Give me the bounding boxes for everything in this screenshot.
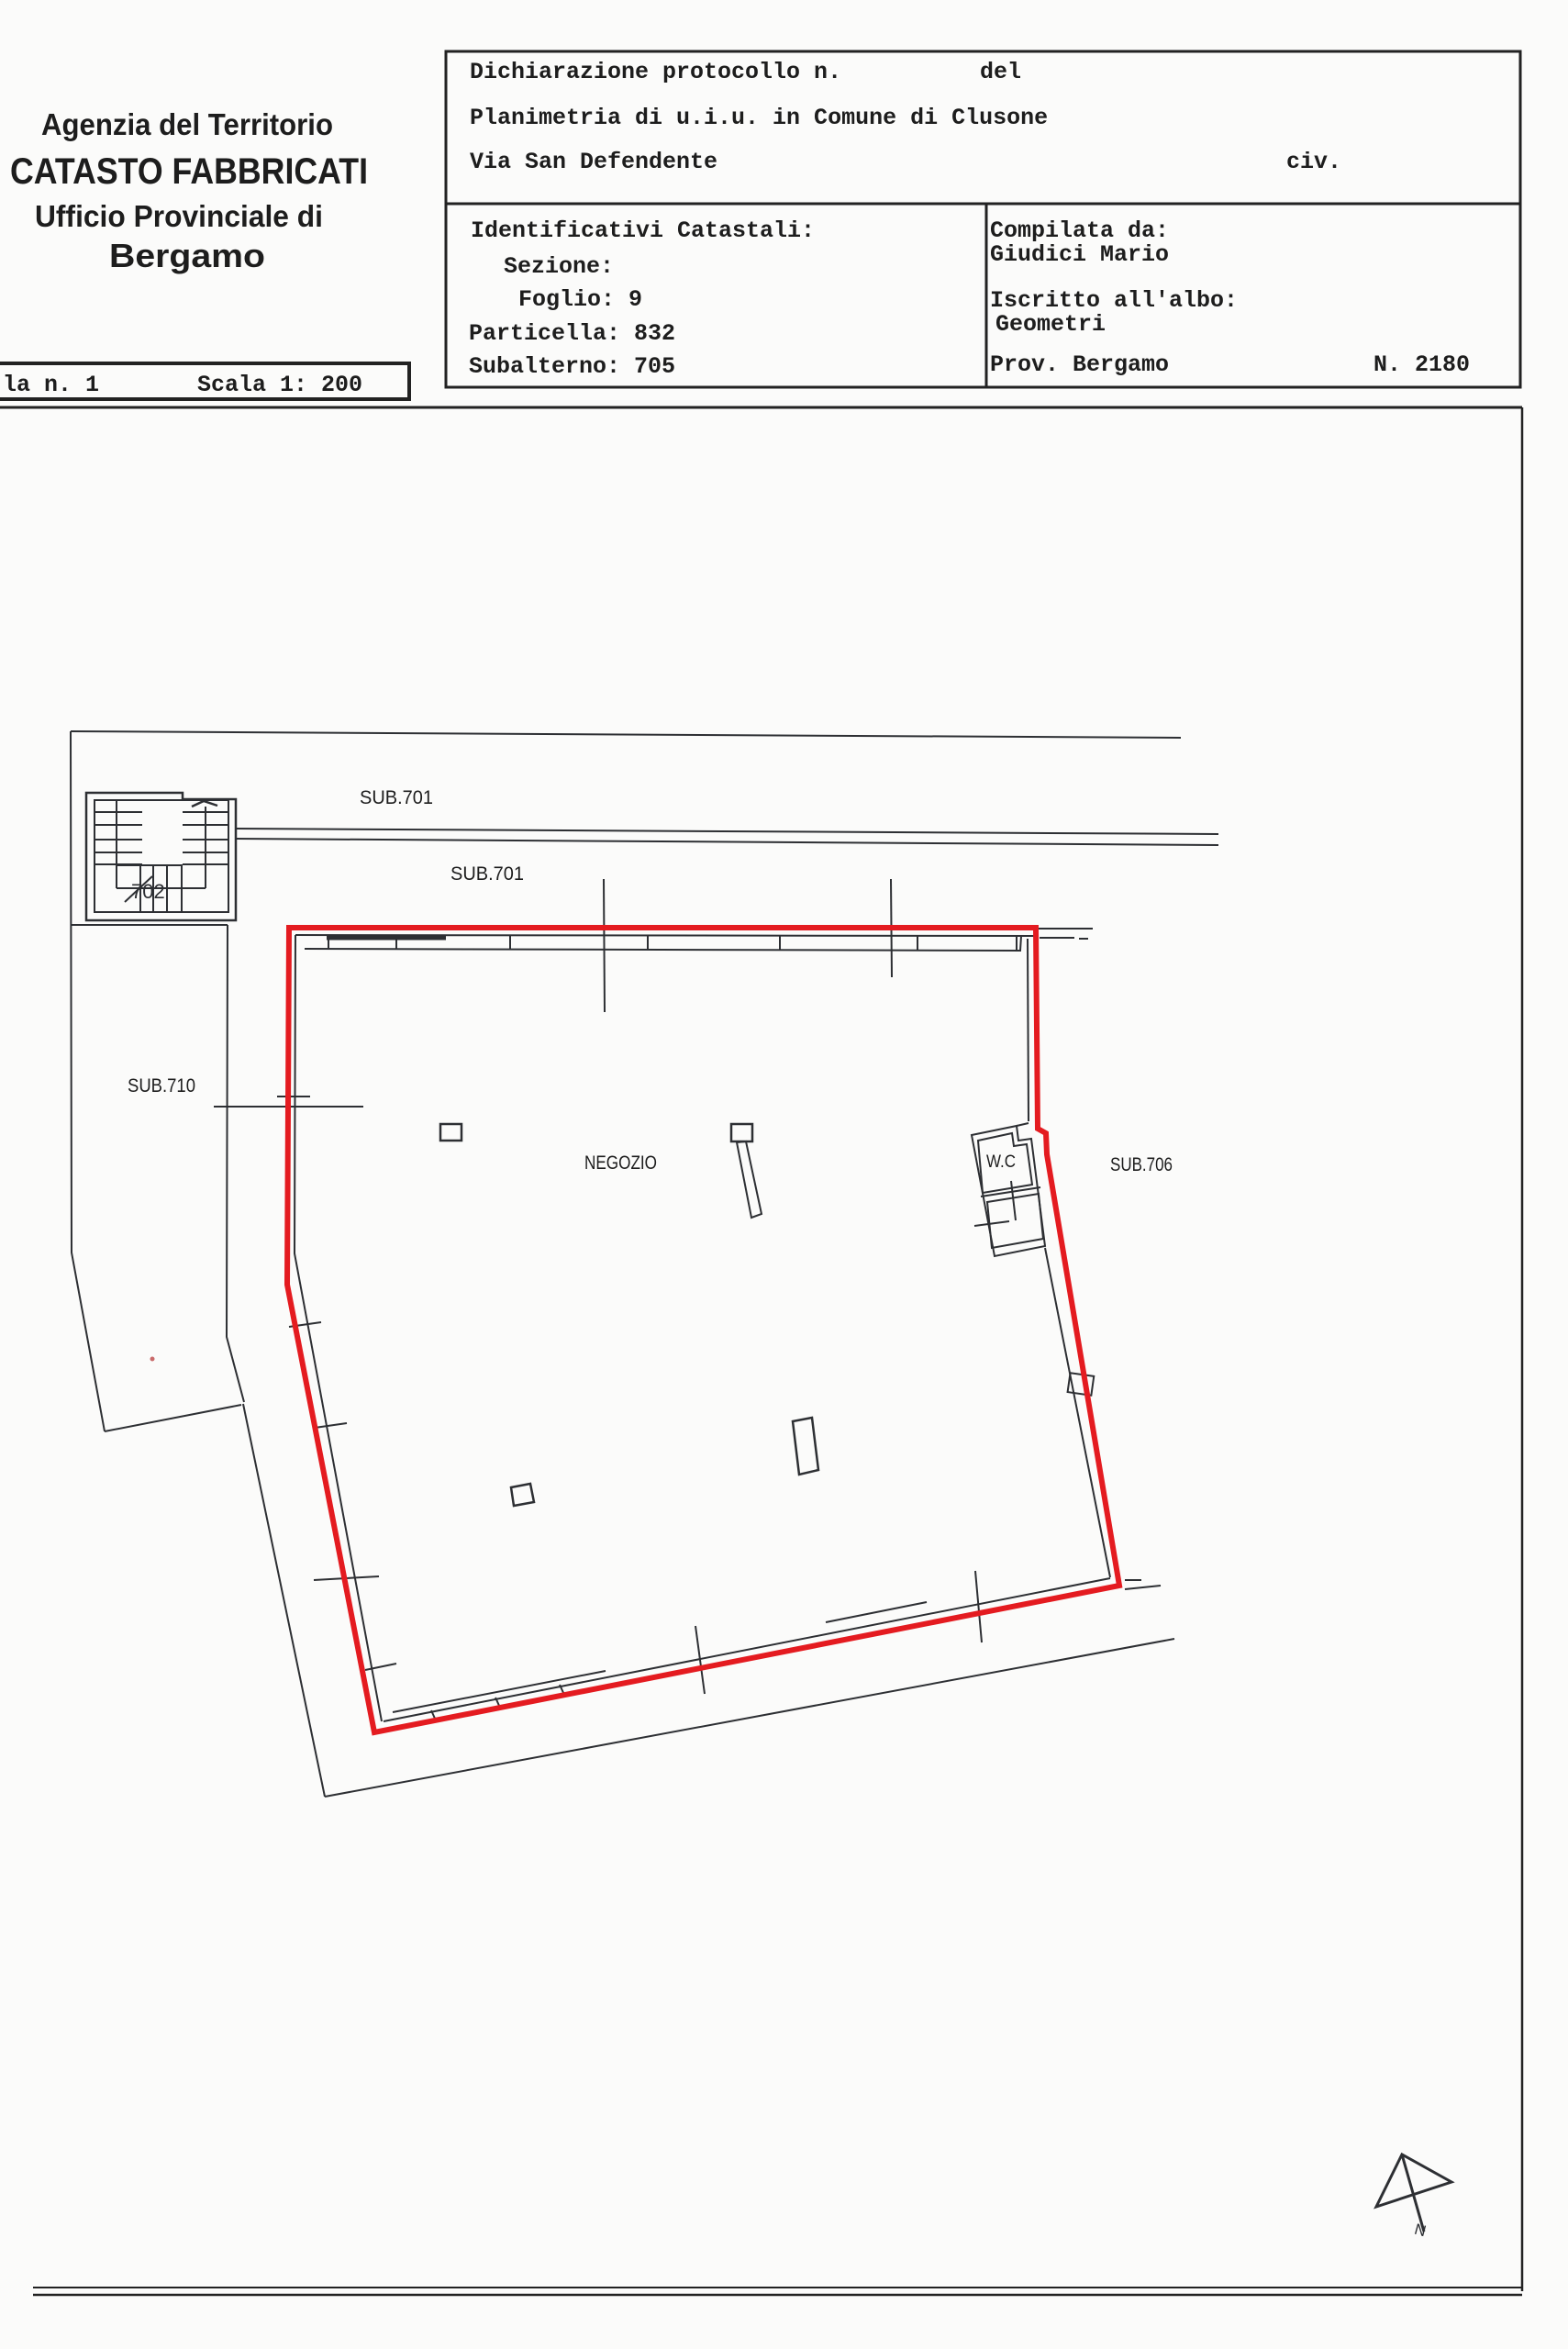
svg-text:Foglio: 9: Foglio: 9 [518,286,642,313]
svg-text:Agenzia del Territorio: Agenzia del Territorio [41,107,333,141]
svg-text:Identificativi Catastali:: Identificativi Catastali: [471,217,815,244]
svg-text:CATASTO FABBRICATI: CATASTO FABBRICATI [10,151,368,192]
svg-text:W.C: W.C [986,1152,1016,1172]
svg-text:la n. 1: la n. 1 [3,372,99,398]
svg-text:Iscritto all'albo:: Iscritto all'albo: [990,287,1238,314]
svg-text:Via San Defendente: Via San Defendente [470,149,717,175]
svg-text:civ.: civ. [1286,149,1341,175]
svg-text:Geometri: Geometri [995,311,1106,338]
svg-text:SUB.706: SUB.706 [1110,1154,1173,1175]
svg-text:Subalterno: 705: Subalterno: 705 [469,353,675,380]
svg-text:N. 2180: N. 2180 [1373,351,1470,378]
svg-text:Sezione:: Sezione: [504,253,614,280]
svg-text:Compilata da:: Compilata da: [990,217,1169,244]
svg-text:SUB.710: SUB.710 [128,1075,195,1097]
svg-text:SUB.701: SUB.701 [360,787,433,808]
svg-text:Particella: 832: Particella: 832 [469,320,675,347]
svg-text:Dichiarazione protocollo n.: Dichiarazione protocollo n. [470,59,841,85]
svg-text:del: del [980,59,1021,85]
svg-text:Prov. Bergamo: Prov. Bergamo [990,351,1169,378]
svg-text:Scala 1: 200: Scala 1: 200 [197,372,362,398]
svg-text:Planimetria di u.i.u. in Comun: Planimetria di u.i.u. in Comune di Cluso… [470,105,1048,131]
svg-text:NEGOZIO: NEGOZIO [584,1152,657,1174]
svg-text:Bergamo: Bergamo [109,237,265,274]
svg-text:SUB.701: SUB.701 [450,863,524,885]
svg-text:Ufficio Provinciale di: Ufficio Provinciale di [35,199,323,233]
svg-text:Giudici Mario: Giudici Mario [990,241,1169,268]
